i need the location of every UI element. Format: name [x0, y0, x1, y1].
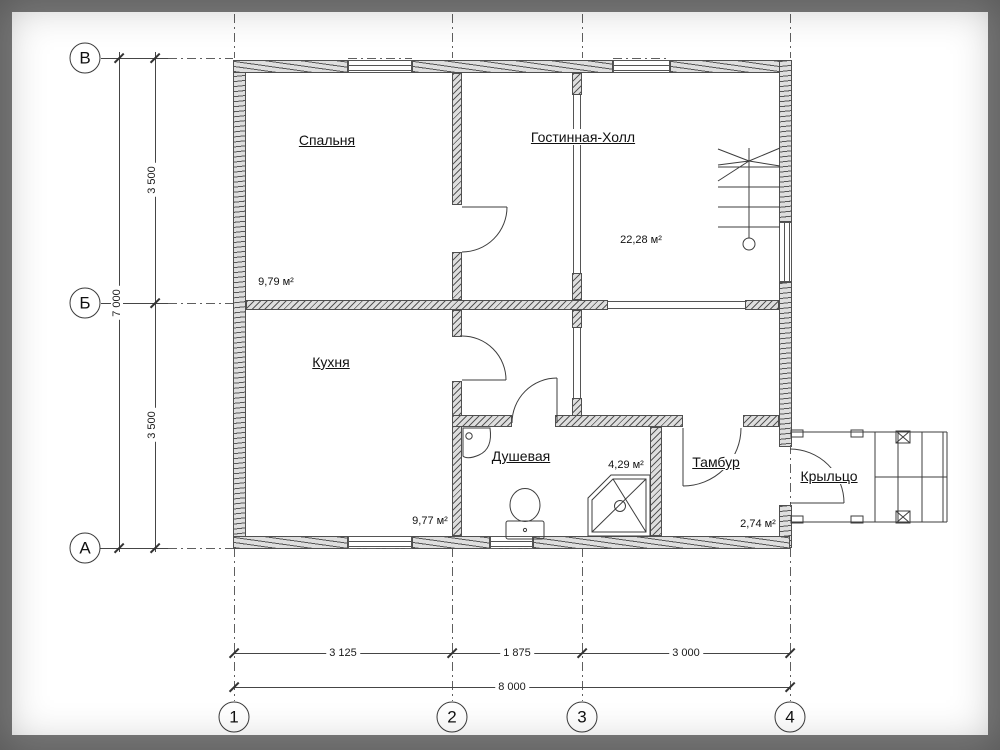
wall-segment	[452, 73, 462, 205]
wall-segment	[452, 310, 462, 337]
dim-label-3125: 3 125	[326, 647, 360, 659]
axis-circle-col-3: 3	[567, 702, 598, 733]
room-label-porch: Крыльцо	[798, 468, 859, 484]
axis-dashed-line	[790, 445, 791, 507]
wall-segment	[743, 415, 779, 427]
room-area-living: 22,28 м²	[620, 234, 662, 246]
wall-segment	[452, 252, 462, 300]
room-area-shower: 4,29 м²	[608, 459, 644, 471]
thin-partition	[573, 328, 581, 398]
wall-segment	[233, 536, 348, 549]
axis-dashed-line	[348, 58, 412, 59]
wall-segment	[412, 60, 613, 73]
axis-dashed-line	[168, 548, 233, 549]
dim-label-3000: 3 000	[669, 647, 703, 659]
wall-segment	[555, 415, 683, 427]
axis-dashed-line	[790, 548, 791, 701]
room-area-tambour: 2,74 м²	[740, 518, 776, 530]
window	[613, 60, 670, 73]
wall-segment	[233, 60, 348, 73]
axis-dashed-line	[452, 14, 453, 58]
axis-stub-line	[101, 58, 168, 59]
axis-circle-col-4: 4	[775, 702, 806, 733]
axis-circle-row-b: Б	[70, 288, 101, 319]
wall-segment	[452, 381, 462, 536]
room-area-kitchen: 9,77 м²	[412, 515, 448, 527]
room-label-living: Гостинная-Холл	[529, 129, 637, 145]
dim-label-7000: 7 000	[111, 286, 123, 320]
dim-label-8000: 8 000	[495, 681, 529, 693]
window	[779, 222, 792, 282]
wall-segment	[233, 60, 246, 548]
wall-segment	[650, 427, 662, 536]
axis-circle-row-a: А	[70, 533, 101, 564]
window	[348, 60, 412, 73]
wall-segment	[533, 536, 790, 549]
axis-dashed-line	[582, 14, 583, 58]
room-area-bedroom: 9,79 м²	[258, 276, 294, 288]
room-label-bedroom: Спальня	[297, 132, 357, 148]
room-label-shower: Душевая	[490, 448, 552, 464]
axis-circle-col-2: 2	[437, 702, 468, 733]
axis-dashed-line	[613, 58, 670, 59]
dim-label-3500-bottom: 3 500	[146, 408, 158, 442]
floor-plan-sheet: Спальня Гостинная-Холл Кухня Душевая Там…	[0, 0, 1000, 750]
wall-segment	[572, 310, 582, 328]
axis-dashed-line	[168, 303, 233, 304]
wall-segment	[246, 300, 608, 310]
wall-segment	[572, 273, 582, 300]
wall-segment	[745, 300, 779, 310]
axis-circle-row-v: В	[70, 43, 101, 74]
wall-segment	[452, 415, 512, 427]
axis-dashed-line	[790, 14, 791, 58]
axis-dashed-line	[452, 548, 453, 701]
wall-segment	[670, 60, 790, 73]
axis-dashed-line	[582, 548, 583, 701]
dim-label-3500-top: 3 500	[146, 163, 158, 197]
thin-partition	[573, 95, 581, 273]
wall-segment	[779, 60, 792, 222]
axis-circle-col-1: 1	[219, 702, 250, 733]
room-label-tambour: Тамбур	[690, 454, 742, 470]
wall-segment	[572, 73, 582, 95]
wall-opening	[608, 301, 745, 309]
room-label-kitchen: Кухня	[310, 354, 351, 370]
axis-dashed-line	[348, 548, 412, 549]
wall-segment	[412, 536, 490, 549]
axis-dashed-line	[490, 548, 533, 549]
axis-stub-line	[99, 548, 168, 549]
axis-dashed-line	[234, 548, 235, 701]
plan-structure-layer	[0, 0, 1000, 750]
dim-label-1875: 1 875	[500, 647, 534, 659]
axis-dashed-line	[234, 14, 235, 58]
wall-segment	[779, 282, 792, 447]
axis-dashed-line	[168, 58, 233, 59]
